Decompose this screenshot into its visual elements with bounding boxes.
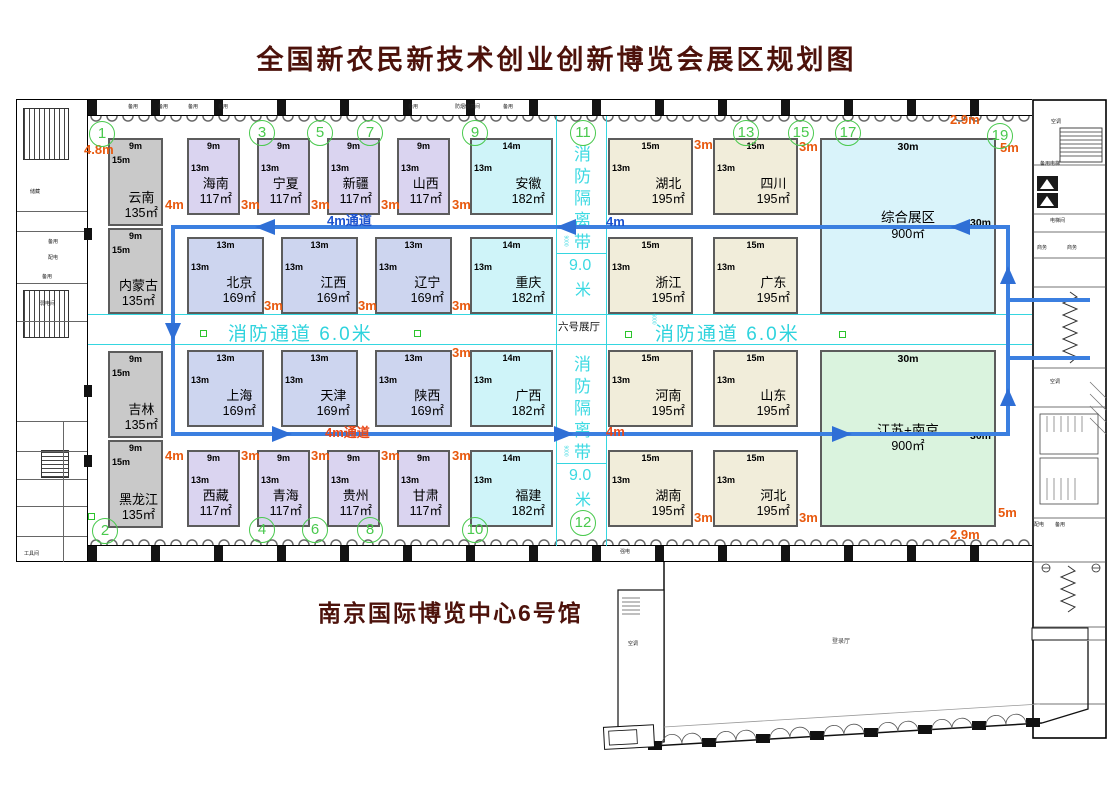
booth: 13m13m天津169㎡ (281, 350, 358, 427)
wall-line (17, 283, 87, 284)
booth-side-dimension: 13m (612, 262, 630, 272)
fire-lane-line (88, 314, 1032, 315)
route-arrow-left-icon (255, 219, 275, 235)
booth-top-dimension: 15m (610, 353, 691, 363)
dimension-label: 4m (165, 448, 184, 463)
position-number-badge: 19 (987, 123, 1013, 149)
wall-line (63, 421, 64, 562)
dimension-label: 2.9m (950, 112, 980, 127)
booth: 14m13m广西182㎡ (470, 350, 553, 427)
route-arrow-up-icon (1000, 388, 1016, 406)
booth-name: 天津 (317, 388, 350, 404)
booth-area: 117㎡ (340, 192, 372, 208)
booth-label: 黑龙江135㎡ (119, 492, 158, 524)
booth-side-dimension: 13m (261, 475, 279, 485)
booth-area: 169㎡ (317, 291, 350, 307)
toilet-stalls (23, 108, 69, 160)
booth-label: 四川195㎡ (757, 176, 790, 208)
door-marker-icon (839, 331, 846, 338)
room-label: 储藏 (30, 188, 40, 195)
booth: 9m13m宁夏117㎡ (257, 138, 310, 215)
booth-label: 上海169㎡ (223, 388, 256, 420)
room-label: 配电 (48, 254, 58, 261)
booth-area: 117㎡ (200, 192, 232, 208)
position-number-badge: 13 (733, 120, 759, 146)
position-number-badge: 17 (835, 120, 861, 146)
booth-label: 内蒙古135㎡ (119, 278, 158, 310)
booth-top-dimension: 9m (110, 443, 161, 453)
fire-strip-char: 带 (574, 438, 591, 463)
booth-label: 甘肃117㎡ (410, 488, 442, 520)
booth: 9m13m海南117㎡ (187, 138, 240, 215)
booth-area: 182㎡ (512, 404, 545, 420)
booth-top-dimension: 13m (189, 240, 262, 250)
entry-hall-label: 登录厅 (832, 636, 850, 645)
booth: 9m15m云南135㎡ (108, 138, 163, 226)
room-label: 备用电梯 (1040, 160, 1060, 167)
north-wall-colonnade (88, 99, 1032, 116)
booth: 15m13m湖北195㎡ (608, 138, 693, 215)
booth-name: 青海 (270, 488, 302, 504)
room-label: 备用 (218, 103, 228, 110)
booth-top-dimension: 9m (110, 141, 161, 151)
wall-line (17, 506, 87, 507)
dimension-label: 3m (452, 298, 471, 313)
booth-side-dimension: 13m (474, 475, 492, 485)
booth-top-dimension: 13m (283, 240, 356, 250)
room-label: 强电 (620, 548, 630, 555)
booth: 15m13m湖南195㎡ (608, 450, 693, 527)
fire-strip-mm-label: 9000 (563, 235, 569, 246)
booth-label: 宁夏117㎡ (270, 176, 302, 208)
booth-name: 安徽 (512, 176, 545, 192)
route-label-top: 4m通道 (327, 210, 372, 229)
booth-name: 云南 (125, 190, 158, 206)
west-wing-rooms (16, 99, 88, 562)
dimension-label: 3m (381, 197, 400, 212)
booth-side-dimension: 13m (191, 163, 209, 173)
booth-side-dimension: 13m (331, 163, 349, 173)
booth-side-dimension: 13m (285, 262, 303, 272)
booth-side-dimension: 15m (112, 155, 130, 165)
route-arrow-right-icon (272, 426, 292, 442)
dimension-label: 3m (264, 298, 283, 313)
booth-side-dimension: 13m (401, 163, 419, 173)
fire-strip-mm-line (557, 253, 607, 254)
dimension-label: 3m (241, 448, 260, 463)
booth-label: 湖南195㎡ (652, 488, 685, 520)
door-marker-icon (88, 513, 95, 520)
room-label: 空调 (1050, 378, 1060, 385)
booth-side-dimension: 13m (191, 262, 209, 272)
dimension-label: 5m (998, 505, 1017, 520)
booth-top-dimension: 15m (715, 453, 796, 463)
booth: 9m15m内蒙古135㎡ (108, 228, 163, 314)
position-number-badge: 11 (570, 120, 596, 146)
route-arrow-down-icon (165, 323, 181, 341)
booth-name: 北京 (223, 275, 256, 291)
booth-name: 广东 (757, 275, 790, 291)
position-number-badge: 10 (462, 517, 488, 543)
booth-area: 195㎡ (652, 504, 685, 520)
booth: 9m13m青海117㎡ (257, 450, 310, 527)
booth-name: 浙江 (652, 275, 685, 291)
booth-label: 山西117㎡ (410, 176, 442, 208)
booth-area: 117㎡ (410, 504, 442, 520)
booth-top-dimension: 15m (610, 141, 691, 151)
wall-line (17, 536, 87, 537)
booth-side-dimension: 13m (191, 375, 209, 385)
wall-line (17, 421, 87, 422)
booth-top-dimension: 13m (283, 353, 356, 363)
booth: 9m13m西藏117㎡ (187, 450, 240, 527)
column (84, 455, 92, 467)
booth-area: 195㎡ (757, 404, 790, 420)
fire-strip-mm-line (557, 463, 607, 464)
booth-top-dimension: 9m (110, 354, 161, 364)
booth-label: 河北195㎡ (757, 488, 790, 520)
position-number-badge: 7 (357, 120, 383, 146)
route-arrow-right-icon (832, 426, 852, 442)
booth-name: 河南 (652, 388, 685, 404)
booth-label: 广西182㎡ (512, 388, 545, 420)
wall-line (17, 321, 87, 322)
position-number-badge: 8 (357, 517, 383, 543)
dimension-label: 2.9m (950, 527, 980, 542)
booth-top-dimension: 13m (377, 240, 450, 250)
room-label: 配电 (1034, 521, 1044, 528)
booth-top-dimension: 15m (715, 240, 796, 250)
booth-side-dimension: 13m (717, 375, 735, 385)
booth-name: 河北 (757, 488, 790, 504)
toilet-stalls (23, 290, 69, 338)
dimension-label: 3m (311, 448, 330, 463)
booth-area: 135㎡ (125, 418, 158, 434)
booth-area: 182㎡ (512, 192, 545, 208)
route-line-bottom (171, 432, 1010, 436)
booth-side-dimension: 13m (285, 375, 303, 385)
room-label: 备用 (1055, 521, 1065, 528)
south-wall-colonnade (88, 545, 1032, 562)
booth-area: 135㎡ (119, 508, 158, 524)
room-label: 商务 (1067, 244, 1077, 251)
booth-area: 135㎡ (119, 294, 158, 310)
booth-name: 贵州 (340, 488, 372, 504)
booth-side-dimension: 15m (112, 368, 130, 378)
booth-label: 青海117㎡ (270, 488, 302, 520)
wall-line (17, 231, 87, 232)
booth-name: 山东 (757, 388, 790, 404)
booth-label: 山东195㎡ (757, 388, 790, 420)
wall-line (17, 479, 87, 480)
room-label: 弱电间 (40, 300, 55, 307)
booth-area: 195㎡ (652, 404, 685, 420)
booth: 15m13m河南195㎡ (608, 350, 693, 427)
booth-area: 169㎡ (411, 291, 444, 307)
booth-area: 195㎡ (757, 291, 790, 307)
booth-name: 内蒙古 (119, 278, 158, 294)
booth: 15m13m河北195㎡ (713, 450, 798, 527)
booth-side-dimension: 13m (379, 262, 397, 272)
booth-area: 135㎡ (125, 206, 158, 222)
booth-side-dimension: 15m (112, 245, 130, 255)
room-label: 防烟储藏间 (455, 103, 480, 110)
booth-label: 新疆117㎡ (340, 176, 372, 208)
booth-name: 广西 (512, 388, 545, 404)
booth-name: 山西 (410, 176, 442, 192)
booth-top-dimension: 9m (110, 231, 161, 241)
room-label: 备用 (503, 103, 513, 110)
booth-top-dimension: 14m (472, 453, 551, 463)
booth-name: 新疆 (340, 176, 372, 192)
dimension-label: 3m (381, 448, 400, 463)
booth-area: 169㎡ (223, 291, 256, 307)
booth-top-dimension: 9m (329, 453, 378, 463)
booth-label: 陕西169㎡ (411, 388, 444, 420)
booth: 9m15m吉林135㎡ (108, 351, 163, 438)
booth-area: 117㎡ (270, 192, 302, 208)
booth-side-dimension: 13m (474, 375, 492, 385)
fire-strip-unit: 米 (575, 486, 591, 510)
booth-area: 182㎡ (512, 291, 545, 307)
booth-label: 浙江195㎡ (652, 275, 685, 307)
dimension-label: 3m (452, 448, 471, 463)
booth-area: 117㎡ (410, 192, 442, 208)
position-number-badge: 4 (249, 517, 275, 543)
room-label: 空调 (628, 640, 638, 647)
route-line-top (171, 225, 1010, 229)
stairs (41, 450, 69, 478)
booth-top-dimension: 9m (189, 453, 238, 463)
route-width-top: 4m (606, 214, 625, 229)
booth-name: 吉林 (125, 402, 158, 418)
booth: 9m13m甘肃117㎡ (397, 450, 450, 527)
room-label: 备用 (188, 103, 198, 110)
room-label: 备用 (408, 103, 418, 110)
booth-top-dimension: 15m (610, 453, 691, 463)
booth-label: 安徽182㎡ (512, 176, 545, 208)
door-marker-icon (625, 331, 632, 338)
booth-area: 117㎡ (270, 504, 302, 520)
route-width-bottom: 4m (606, 424, 625, 439)
booth-area: 195㎡ (757, 192, 790, 208)
booth-area: 195㎡ (652, 291, 685, 307)
booth-name: 辽宁 (411, 275, 444, 291)
booth: 13m13m辽宁169㎡ (375, 237, 452, 314)
booth: 13m13m上海169㎡ (187, 350, 264, 427)
booth: 9m13m新疆117㎡ (327, 138, 380, 215)
booth-name: 湖南 (652, 488, 685, 504)
booth-area: 169㎡ (223, 404, 256, 420)
booth: 14m13m福建182㎡ (470, 450, 553, 527)
booth: 14m13m重庆182㎡ (470, 237, 553, 314)
booth-name: 陕西 (411, 388, 444, 404)
hall-number-label: 六号展厅 (558, 319, 600, 334)
booth: 15m13m广东195㎡ (713, 237, 798, 314)
room-label: 备用 (42, 273, 52, 280)
wall-line (17, 451, 87, 452)
dimension-label: 3m (694, 510, 713, 525)
position-number-badge: 15 (788, 120, 814, 146)
booth-label: 湖北195㎡ (652, 176, 685, 208)
booth: 13m13m陕西169㎡ (375, 350, 452, 427)
booth-side-dimension: 13m (261, 163, 279, 173)
booth-top-dimension: 30m (822, 353, 994, 365)
booth-label: 吉林135㎡ (125, 402, 158, 434)
booth-side-dimension: 13m (717, 262, 735, 272)
dimension-label: 3m (452, 345, 471, 360)
booth-name: 西藏 (200, 488, 232, 504)
dimension-label: 3m (799, 510, 818, 525)
booth: 14m13m安徽182㎡ (470, 138, 553, 215)
booth: 13m13m北京169㎡ (187, 237, 264, 314)
room-label: 工具间 (24, 550, 39, 557)
booth-name: 重庆 (512, 275, 545, 291)
booth-name: 福建 (512, 488, 545, 504)
booth-top-dimension: 13m (189, 353, 262, 363)
route-label-bottom: 4m通道 (325, 422, 370, 441)
booth-area: 195㎡ (757, 504, 790, 520)
booth-area: 169㎡ (317, 404, 350, 420)
fire-strip-width: 9.0 (569, 257, 591, 275)
booth-top-dimension: 9m (399, 453, 448, 463)
booth-label: 福建182㎡ (512, 488, 545, 520)
booth-area: 182㎡ (512, 504, 545, 520)
booth-label: 贵州117㎡ (340, 488, 372, 520)
route-arrow-left-icon (556, 219, 576, 235)
dimension-label: 3m (694, 137, 713, 152)
booth: 9m13m贵州117㎡ (327, 450, 380, 527)
booth-side-dimension: 13m (717, 163, 735, 173)
booth-side-dimension: 13m (612, 375, 630, 385)
booth-label: 辽宁169㎡ (411, 275, 444, 307)
booth-name: 海南 (200, 176, 232, 192)
wall-line (17, 211, 87, 212)
door-marker-icon (414, 330, 421, 337)
route-arrow-up-icon (1000, 266, 1016, 284)
room-label: 空调 (1051, 118, 1061, 125)
booth: 15m13m山东195㎡ (713, 350, 798, 427)
column (84, 385, 92, 397)
booth-area: 117㎡ (200, 504, 232, 520)
booth-name: 上海 (223, 388, 256, 404)
dimension-label: 3m (311, 197, 330, 212)
venue-label: 南京国际博览中心6号馆 (318, 594, 583, 628)
booth-side-dimension: 13m (474, 262, 492, 272)
route-stub (1008, 298, 1090, 302)
fire-strip-width: 9.0 (569, 467, 591, 485)
entry-hall-drawing (590, 556, 1113, 787)
booth: 15m13m浙江195㎡ (608, 237, 693, 314)
booth-label: 天津169㎡ (317, 388, 350, 420)
booth-side-dimension: 13m (401, 475, 419, 485)
fire-strip-unit: 米 (575, 276, 591, 300)
room-label: 备用 (48, 238, 58, 245)
booth: 13m13m江西169㎡ (281, 237, 358, 314)
booth-label: 西藏117㎡ (200, 488, 232, 520)
dimension-label: 3m (358, 298, 377, 313)
booth-name: 黑龙江 (119, 492, 158, 508)
dimension-label: 3m (241, 197, 260, 212)
position-number-badge: 2 (92, 518, 118, 544)
booth-top-dimension: 15m (610, 240, 691, 250)
booth-name: 江西 (317, 275, 350, 291)
booth-side-dimension: 13m (612, 475, 630, 485)
booth-label: 重庆182㎡ (512, 275, 545, 307)
dimension-label: 3m (452, 197, 471, 212)
position-number-badge: 9 (462, 120, 488, 146)
booth-name: 宁夏 (270, 176, 302, 192)
floor-plan: 全国新农民新技术创业创新博览会展区规划图 南京国际博览中心6号馆 (0, 0, 1113, 787)
booth-top-dimension: 9m (189, 141, 238, 151)
route-arrow-right-icon (554, 426, 574, 442)
booth: 9m15m黑龙江135㎡ (108, 440, 163, 528)
booth-top-dimension: 9m (259, 453, 308, 463)
booth-side-dimension: 13m (612, 163, 630, 173)
booth-area: 169㎡ (411, 404, 444, 420)
room-label: 备用 (158, 103, 168, 110)
booth-top-dimension: 14m (472, 353, 551, 363)
room-label: 商务 (1037, 244, 1047, 251)
route-stub (1008, 356, 1090, 360)
booth-top-dimension: 15m (715, 141, 796, 151)
room-label: 备用 (128, 103, 138, 110)
booth-side-dimension: 13m (717, 475, 735, 485)
position-number-badge: 5 (307, 120, 333, 146)
fire-lane-label: 消防通道 6.0米 (655, 319, 800, 346)
door-marker-icon (200, 330, 207, 337)
fire-strip-mm-label: 9000 (563, 445, 569, 456)
dimension-label: 4m (165, 197, 184, 212)
position-number-badge: 12 (570, 510, 596, 536)
booth-label: 海南117㎡ (200, 176, 232, 208)
booth-top-dimension: 13m (377, 353, 450, 363)
route-arrow-left-icon (950, 219, 970, 235)
page-title: 全国新农民新技术创业创新博览会展区规划图 (0, 38, 1113, 77)
booth-side-dimension: 15m (112, 457, 130, 467)
booth-top-dimension: 9m (399, 141, 448, 151)
booth-name: 四川 (757, 176, 790, 192)
booth: 15m13m四川195㎡ (713, 138, 798, 215)
booth-top-dimension: 14m (472, 240, 551, 250)
column (84, 228, 92, 240)
booth-name: 湖北 (652, 176, 685, 192)
booth-side-dimension: 13m (474, 163, 492, 173)
booth-label: 广东195㎡ (757, 275, 790, 307)
position-number-badge: 6 (302, 517, 328, 543)
booth-area: 195㎡ (652, 192, 685, 208)
booth-side-dimension: 13m (379, 375, 397, 385)
booth-side-dimension: 13m (191, 475, 209, 485)
booth-top-dimension: 15m (715, 353, 796, 363)
booth: 9m13m山西117㎡ (397, 138, 450, 215)
booth-name: 甘肃 (410, 488, 442, 504)
fire-lane-label: 消防通道 6.0米 (228, 319, 373, 346)
booth-label: 河南195㎡ (652, 388, 685, 420)
position-number-badge: 1 (89, 121, 115, 147)
booth-label: 江西169㎡ (317, 275, 350, 307)
position-number-badge: 3 (249, 120, 275, 146)
booth-label: 云南135㎡ (125, 190, 158, 222)
room-label: 电梯间 (1050, 217, 1065, 224)
booth-label: 北京169㎡ (223, 275, 256, 307)
booth-side-dimension: 13m (331, 475, 349, 485)
fire-strip-char: 带 (574, 228, 591, 253)
